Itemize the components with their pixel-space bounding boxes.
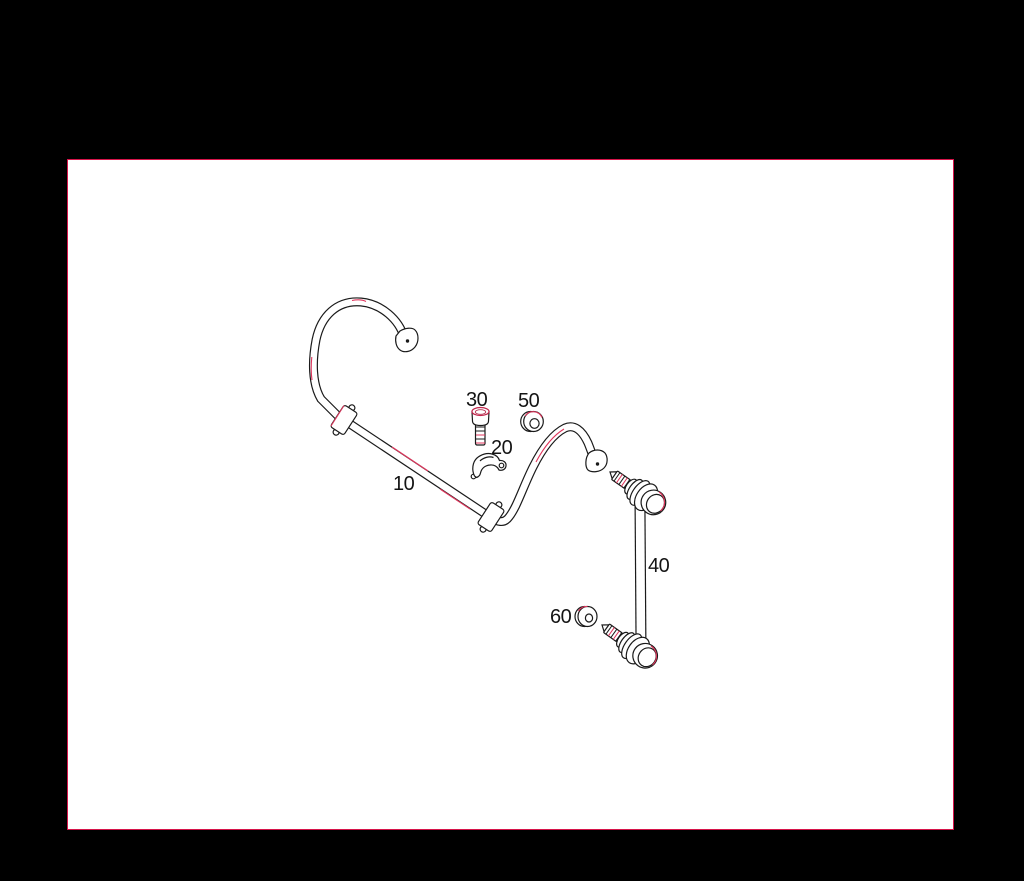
nut	[521, 412, 544, 432]
washer	[575, 606, 597, 626]
callout-50[interactable]: 50	[518, 390, 540, 412]
callout-20[interactable]: 20	[491, 437, 513, 459]
callout-10[interactable]: 10	[393, 473, 415, 495]
callout-40[interactable]: 40	[648, 555, 670, 577]
callout-30[interactable]: 30	[466, 389, 488, 411]
accent-strokes	[311, 300, 664, 665]
bar-end-tab-left	[396, 328, 418, 351]
lower-ball-joint	[593, 613, 663, 675]
bolt	[472, 408, 489, 446]
page-background: 10 20 30 40 50 60	[0, 0, 1024, 881]
parts-diagram: 10 20 30 40 50 60	[0, 0, 1024, 881]
callout-60[interactable]: 60	[550, 606, 572, 628]
bar-end-tab-right	[586, 450, 607, 472]
